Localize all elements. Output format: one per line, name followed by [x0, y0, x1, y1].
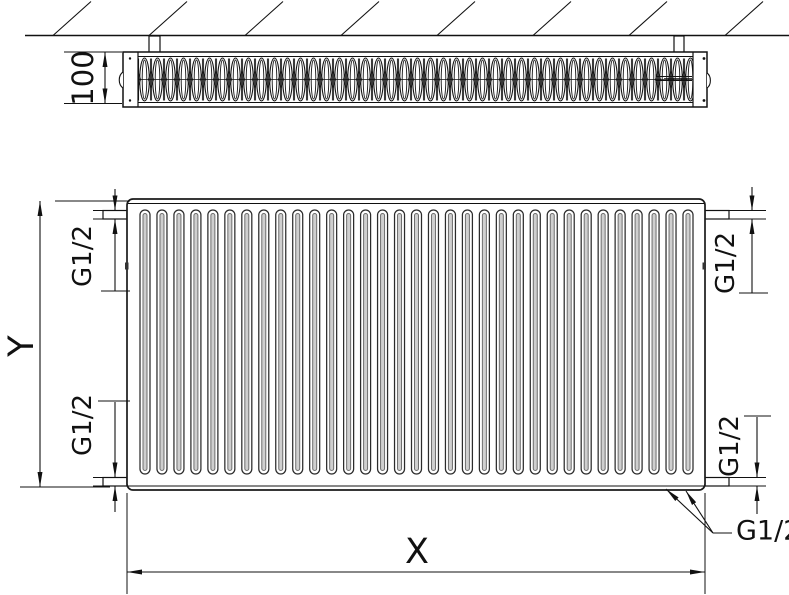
depth-dimension-label: 100: [66, 50, 100, 105]
fin-groove: [635, 214, 639, 471]
fin-groove: [448, 214, 452, 471]
fin-groove: [584, 214, 588, 471]
fin-groove: [550, 214, 554, 471]
right-valve-nub: [707, 73, 710, 88]
hatch-line: [53, 2, 91, 36]
connection-stub-top-right: [705, 211, 766, 220]
connection-stub-top-left: [93, 211, 127, 220]
hatch-line: [341, 2, 379, 36]
screw-dot: [703, 57, 706, 60]
connection-stub-bottom-right: [705, 478, 766, 487]
fin-groove: [296, 214, 300, 471]
fin-groove: [618, 214, 622, 471]
radiator-front-view: [93, 199, 766, 490]
fin-groove: [279, 214, 283, 471]
fin-groove: [652, 214, 656, 471]
fin-groove: [533, 214, 537, 471]
thread-label-bottom-left: G1/2: [68, 394, 98, 456]
wall-section: [25, 2, 789, 36]
hatch-line: [245, 2, 283, 36]
thread-dimension-top-right: G1/2: [711, 187, 768, 294]
fin-groove: [177, 214, 181, 471]
height-dimension: Y: [2, 201, 130, 487]
fin-groove: [431, 214, 435, 471]
side-tab-right: [703, 263, 707, 270]
fin-groove: [499, 214, 503, 471]
thread-label-bottom-right: G1/2: [715, 415, 745, 477]
drawing-canvas: 100: [0, 0, 789, 595]
hatch-line: [725, 2, 763, 36]
wall-hatching: [53, 2, 763, 36]
fin-groove: [669, 214, 673, 471]
fin-groove: [160, 214, 164, 471]
fin-groove: [245, 214, 249, 471]
hatch-line: [629, 2, 667, 36]
hatch-line: [533, 2, 571, 36]
thread-label-top-right: G1/2: [711, 232, 741, 294]
thread-label-top-left: G1/2: [68, 225, 98, 287]
side-tab-left: [125, 263, 129, 270]
connection-stub-bottom-left: [93, 478, 127, 487]
fin-groove: [398, 214, 402, 471]
screw-dot: [703, 99, 706, 102]
screw-dot: [129, 99, 131, 101]
fin-groove: [465, 214, 469, 471]
radiator-top-view: [119, 52, 710, 107]
depth-dimension: 100: [64, 50, 122, 105]
width-dimension-label: X: [405, 532, 429, 572]
left-plug-bump: [119, 72, 123, 88]
hatch-line: [437, 2, 475, 36]
fin-groove: [364, 214, 368, 471]
thread-dimension-bottom-right: G1/2: [715, 415, 771, 514]
fin-groove: [482, 214, 486, 471]
thread-leader-callout: G1/2: [666, 489, 789, 547]
fin-groove: [228, 214, 232, 471]
fin-groove: [686, 214, 690, 471]
height-dimension-label: Y: [2, 335, 42, 358]
fin-groove: [567, 214, 571, 471]
thread-dimension-top-left: G1/2: [68, 189, 130, 291]
wall-bracket-left: [149, 36, 160, 53]
fin-groove: [313, 214, 317, 471]
fin-groove: [415, 214, 419, 471]
fin-groove: [143, 214, 147, 471]
fin-groove: [262, 214, 266, 471]
thread-label-bottom-ports: G1/2: [736, 516, 789, 547]
wall-bracket-right: [674, 36, 684, 53]
width-dimension: X: [127, 493, 705, 594]
fin-groove: [330, 214, 334, 471]
fin-groove: [601, 214, 605, 471]
fin-groove: [516, 214, 520, 471]
radiator-technical-drawing: 100: [0, 0, 789, 595]
fin-groove: [381, 214, 385, 471]
fin-groove: [194, 214, 198, 471]
fin-groove: [347, 214, 351, 471]
screw-dot: [129, 57, 131, 59]
thread-dimension-bottom-left: G1/2: [68, 394, 130, 512]
fin-groove: [211, 214, 215, 471]
hatch-line: [149, 2, 187, 36]
